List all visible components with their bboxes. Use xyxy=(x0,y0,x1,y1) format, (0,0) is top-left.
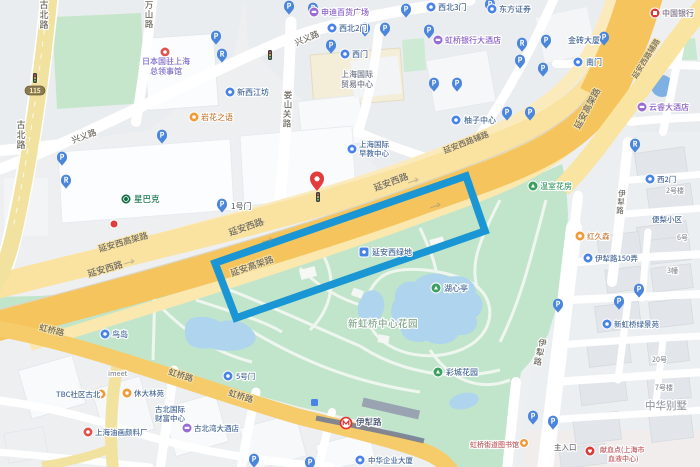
svg-text:西2门: 西2门 xyxy=(657,174,676,185)
svg-text:古北路: 古北路 xyxy=(39,0,48,31)
svg-text:imeet: imeet xyxy=(108,369,127,379)
svg-text:娄山关路: 娄山关路 xyxy=(283,89,293,130)
svg-text:便梨小区: 便梨小区 xyxy=(652,214,682,225)
svg-text:上海国际贸易中心: 上海国际贸易中心 xyxy=(341,69,373,90)
svg-text:岩花之语: 岩花之语 xyxy=(201,112,233,123)
svg-text:东方证券: 东方证券 xyxy=(499,4,531,15)
svg-text:柚子中心: 柚子中心 xyxy=(464,115,496,126)
svg-text:西北3门: 西北3门 xyxy=(438,2,467,13)
svg-text:上海油画颜料厂: 上海油画颜料厂 xyxy=(95,427,148,438)
svg-text:TBC社区古北: TBC社区古北 xyxy=(56,389,101,400)
svg-text:2号楼: 2号楼 xyxy=(666,186,684,196)
svg-text:延安西绿地: 延安西绿地 xyxy=(372,247,412,258)
svg-text:中华企业大厦: 中华企业大厦 xyxy=(368,455,413,466)
svg-text:6号: 6号 xyxy=(677,233,688,243)
svg-text:虹桥银行大酒店: 虹桥银行大酒店 xyxy=(445,35,501,46)
svg-text:温室花房: 温室花房 xyxy=(540,181,572,192)
svg-text:新西江坊: 新西江坊 xyxy=(237,87,269,98)
svg-text:1号门: 1号门 xyxy=(231,201,252,212)
svg-text:申迪百货广场: 申迪百货广场 xyxy=(321,7,369,18)
svg-text:5号门: 5号门 xyxy=(236,371,255,382)
svg-text:湖心亭: 湖心亭 xyxy=(444,283,468,294)
svg-text:万山路: 万山路 xyxy=(145,0,154,30)
svg-text:云睿大酒店: 云睿大酒店 xyxy=(649,102,689,113)
svg-text:中华别墅: 中华别墅 xyxy=(645,398,687,413)
svg-text:虹桥街道图书馆: 虹桥街道图书馆 xyxy=(470,440,519,450)
svg-text:7号楼: 7号楼 xyxy=(655,383,673,393)
svg-text:南门: 南门 xyxy=(586,57,602,68)
svg-text:红久森: 红久森 xyxy=(587,231,610,242)
svg-text:伊犁路150弄: 伊犁路150弄 xyxy=(595,253,638,264)
svg-text:西门: 西门 xyxy=(352,49,368,60)
svg-text:古北湾大酒店: 古北湾大酒店 xyxy=(194,423,239,434)
svg-text:新虹桥绿景苑: 新虹桥绿景苑 xyxy=(614,319,659,330)
svg-text:彩城花园: 彩城花园 xyxy=(446,367,478,378)
svg-text:古北路: 古北路 xyxy=(16,118,25,151)
svg-text:西北2门: 西北2门 xyxy=(339,23,368,34)
svg-text:星巴克: 星巴克 xyxy=(134,193,160,205)
svg-text:主入口: 主入口 xyxy=(554,442,577,453)
svg-text:中国银行: 中国银行 xyxy=(662,8,694,19)
svg-text:新虹桥中心花园: 新虹桥中心花园 xyxy=(348,316,418,330)
svg-text:3幢: 3幢 xyxy=(667,266,678,276)
svg-text:115: 115 xyxy=(29,85,40,95)
svg-text:休大林苑: 休大林苑 xyxy=(134,388,164,399)
svg-text:金砖大厦: 金砖大厦 xyxy=(568,35,600,46)
svg-text:20号: 20号 xyxy=(652,355,667,365)
svg-text:上海国际早教中心: 上海国际早教中心 xyxy=(359,139,389,159)
svg-text:伊犁路: 伊犁路 xyxy=(356,416,382,428)
svg-text:鸟岛: 鸟岛 xyxy=(112,329,128,340)
svg-text:古北国际财富中心: 古北国际财富中心 xyxy=(155,404,185,424)
